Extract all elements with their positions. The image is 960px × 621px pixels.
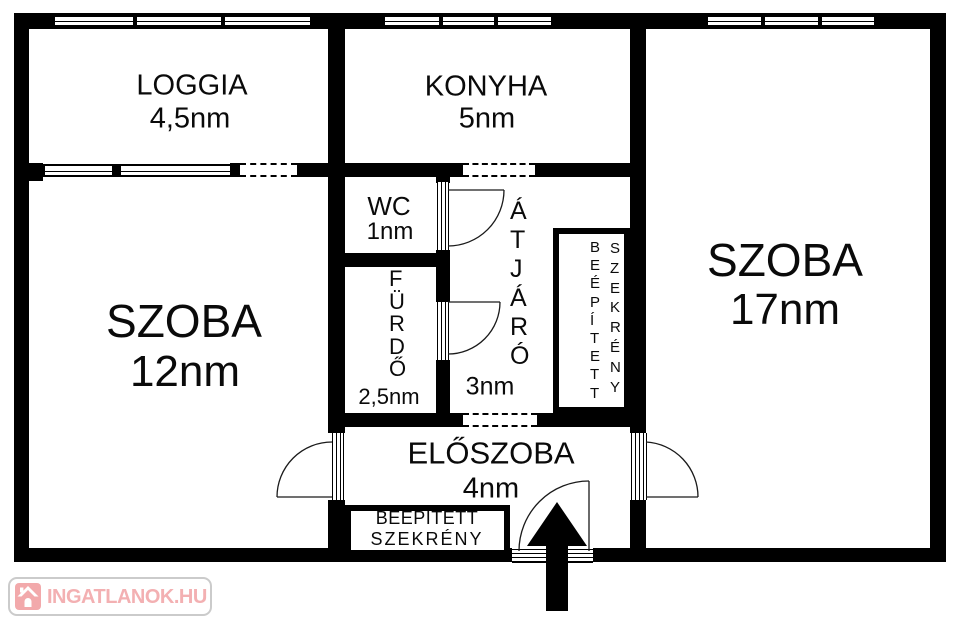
wall-v1-lower bbox=[328, 500, 345, 562]
window-glass-line bbox=[385, 21, 551, 22]
szoba17-label: SZOBA bbox=[707, 237, 863, 283]
konyha-label: KONYHA bbox=[425, 73, 547, 102]
closet-eloszoba-line1: BEEPITETT bbox=[376, 509, 479, 527]
window-mullion bbox=[439, 15, 443, 27]
entrance-door-sill bbox=[512, 549, 593, 563]
watermark-text: INGATLANOK.HU bbox=[47, 587, 207, 607]
window-mullion bbox=[494, 15, 498, 27]
wc-label: WC bbox=[367, 193, 410, 219]
window-glass-line bbox=[55, 21, 310, 22]
loggia-label: LOGGIA bbox=[136, 72, 247, 101]
window-loggia-top bbox=[53, 15, 312, 27]
wall-v2-seg2 bbox=[436, 250, 450, 302]
window-mullion bbox=[221, 15, 225, 27]
floor-plan: LOGGIA 4,5nm KONYHA 5nm WC 1nm SZOBA 12n… bbox=[0, 0, 960, 621]
window-glass-line bbox=[708, 21, 874, 22]
konyha-area: 5nm bbox=[459, 105, 515, 134]
entrance-door-arc bbox=[519, 481, 589, 551]
furdo-label: FÜRDŐ bbox=[389, 268, 391, 381]
window-konyha-top bbox=[383, 15, 553, 27]
window-glass-line bbox=[45, 171, 235, 172]
wall-v3-lower bbox=[630, 500, 646, 562]
wall-h3-seg2 bbox=[537, 413, 646, 427]
house-icon bbox=[15, 583, 41, 610]
window-mullion bbox=[761, 15, 765, 27]
closet-atjaro-word2: SZEKRÉNY bbox=[610, 239, 612, 397]
window-mullion bbox=[133, 15, 137, 27]
eloszoba-szoba12-door-arc bbox=[277, 442, 332, 497]
atjaro-area: 3nm bbox=[466, 375, 515, 400]
eloszoba-szoba17-door-arc bbox=[646, 442, 698, 497]
atjaro-label: ÁTJÁRÓ bbox=[510, 197, 512, 371]
window-szoba17-top bbox=[706, 15, 876, 27]
closet-atjaro-word1: BEÉPÍTETT bbox=[590, 239, 592, 403]
window-mullion bbox=[818, 15, 822, 27]
window-mullion-thick bbox=[112, 164, 121, 177]
window-loggia-bottom bbox=[43, 164, 237, 177]
furdo-area: 2,5nm bbox=[358, 386, 419, 408]
wall-h1-seg3 bbox=[535, 163, 646, 177]
wc-door-arc bbox=[448, 190, 504, 246]
eloszoba-szoba12-door-threshold bbox=[332, 433, 344, 500]
wall-h1-seg1 bbox=[230, 163, 240, 177]
szoba12-area: 12nm bbox=[130, 350, 240, 394]
eloszoba-area: 4nm bbox=[463, 475, 519, 504]
wall-v1-upper bbox=[328, 13, 345, 433]
furdo-door-threshold bbox=[437, 302, 449, 360]
opening-loggia-szoba12 bbox=[240, 163, 297, 177]
opening-konyha-atjaro bbox=[463, 163, 535, 177]
opening-eloszoba-atjaro bbox=[463, 413, 537, 427]
watermark-badge: INGATLANOK.HU bbox=[8, 577, 212, 616]
furdo-door-arc bbox=[448, 302, 500, 354]
szoba12-label: SZOBA bbox=[106, 298, 262, 344]
eloszoba-label: ELŐSZOBA bbox=[407, 438, 574, 469]
eloszoba-szoba17-door-threshold bbox=[631, 433, 647, 500]
wall-h3-seg1 bbox=[328, 413, 463, 427]
wall-v3-upper bbox=[630, 13, 646, 433]
wall-right bbox=[930, 13, 946, 562]
wc-area: 1nm bbox=[367, 220, 414, 244]
szoba17-area: 17nm bbox=[730, 288, 840, 332]
closet-eloszoba-line2: SZEKRÉNY bbox=[370, 530, 483, 548]
wall-h1-seg2 bbox=[297, 163, 463, 177]
loggia-area: 4,5nm bbox=[150, 105, 231, 134]
wall-wc-furdo bbox=[328, 253, 450, 267]
wall-h1-pier bbox=[28, 163, 43, 181]
wall-left bbox=[14, 13, 29, 562]
wc-door-threshold bbox=[437, 182, 449, 250]
